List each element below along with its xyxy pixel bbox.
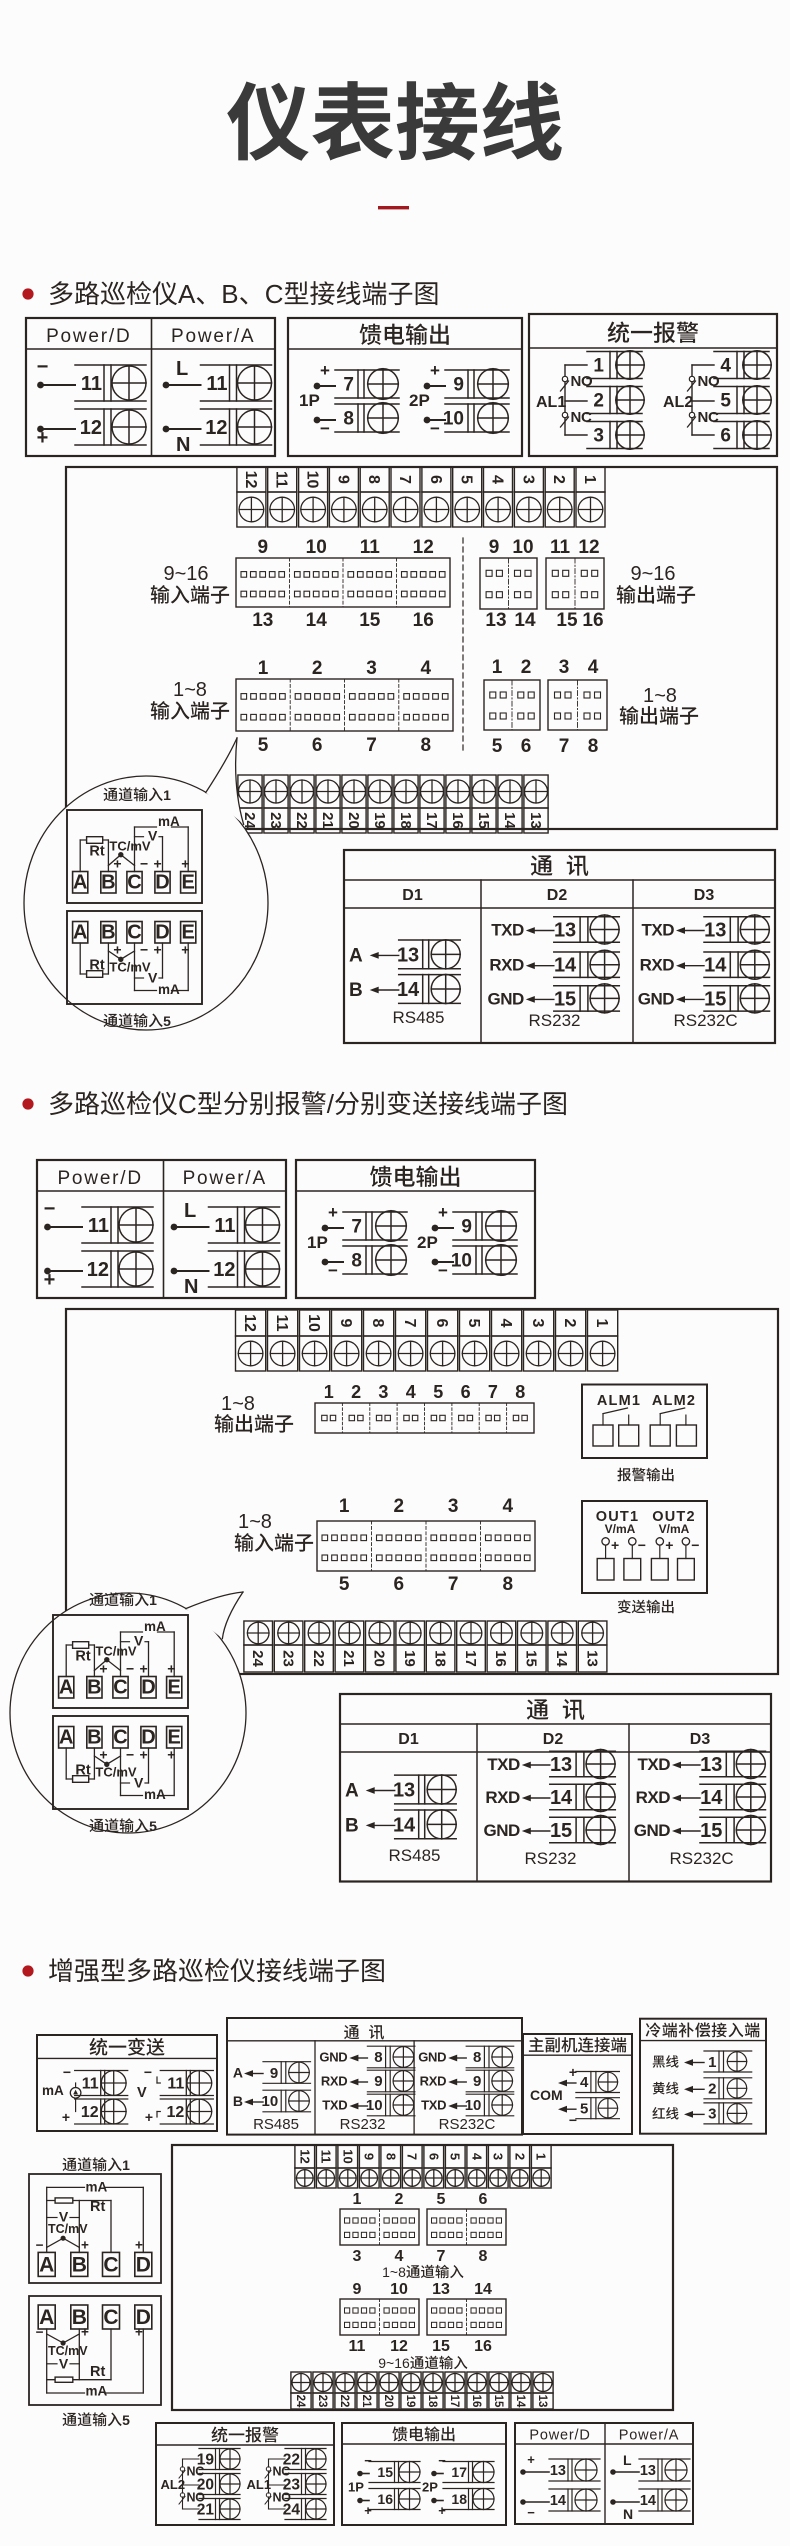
svg-text:B: B [349, 980, 363, 1001]
svg-text:22: 22 [293, 812, 310, 829]
svg-text:A: A [59, 1677, 73, 1699]
svg-text:10: 10 [306, 537, 327, 558]
svg-text:C: C [113, 1727, 127, 1749]
svg-text:−: − [438, 1261, 448, 1280]
svg-text:ALM1: ALM1 [597, 1393, 641, 1409]
svg-text:C: C [103, 2253, 118, 2276]
svg-text:10: 10 [390, 2281, 408, 2298]
svg-text:TXD: TXD [322, 2098, 347, 2113]
svg-text:+: + [181, 942, 189, 958]
svg-text:4: 4 [580, 2074, 589, 2091]
svg-text:9: 9 [334, 475, 351, 484]
svg-text:−: − [140, 856, 148, 872]
svg-text:8: 8 [588, 736, 599, 757]
svg-text:15: 15 [377, 2464, 393, 2480]
svg-text:7: 7 [559, 736, 570, 757]
svg-text:1: 1 [186, 563, 197, 585]
svg-text:9: 9 [362, 2153, 377, 2160]
svg-text:22: 22 [338, 2395, 350, 2408]
svg-text:1: 1 [653, 563, 664, 585]
svg-text:12: 12 [81, 2104, 99, 2121]
svg-text:8: 8 [374, 2049, 382, 2066]
svg-text:~: ~ [249, 1511, 261, 1533]
svg-text:7: 7 [488, 1382, 498, 1402]
svg-text:2: 2 [512, 2153, 527, 2160]
svg-text:1: 1 [708, 2054, 716, 2071]
svg-text:D: D [141, 1727, 155, 1749]
svg-text:NO: NO [571, 373, 594, 390]
svg-text:−: − [691, 1537, 699, 1553]
svg-text:11: 11 [82, 2076, 99, 2093]
svg-text:18: 18 [431, 1650, 448, 1667]
svg-text:TC/mV: TC/mV [109, 960, 150, 975]
svg-text:+: + [154, 856, 162, 872]
svg-text:6: 6 [479, 2191, 488, 2208]
svg-text:RS232: RS232 [340, 2116, 386, 2133]
svg-text:+: + [438, 1203, 448, 1222]
svg-text:12: 12 [241, 1314, 258, 1332]
svg-text:6: 6 [426, 2153, 441, 2160]
svg-text:9: 9 [164, 563, 175, 585]
svg-text:13: 13 [252, 610, 273, 631]
svg-text:12: 12 [87, 1259, 109, 1281]
svg-text:14: 14 [306, 610, 328, 631]
svg-text:D: D [141, 1677, 155, 1699]
svg-text:C: C [113, 1677, 127, 1699]
svg-text:8: 8 [398, 2264, 406, 2280]
svg-text:6: 6 [720, 426, 731, 447]
svg-text:6: 6 [197, 563, 208, 585]
svg-text:11: 11 [88, 1215, 109, 1237]
svg-text:5: 5 [437, 2191, 446, 2208]
svg-text:2: 2 [395, 2191, 404, 2208]
svg-text:NC: NC [698, 409, 720, 426]
svg-text:+: + [140, 1747, 148, 1763]
svg-text:~: ~ [184, 679, 196, 701]
svg-text:16: 16 [470, 2395, 482, 2408]
svg-text:Rt: Rt [75, 1763, 90, 1779]
svg-text:1: 1 [353, 2191, 362, 2208]
svg-text:5: 5 [720, 391, 731, 412]
svg-text:mA: mA [42, 2083, 64, 2098]
svg-text:AL1: AL1 [536, 394, 566, 411]
svg-text:1: 1 [534, 2153, 549, 2160]
svg-text:8: 8 [369, 1319, 386, 1328]
svg-text:+: + [81, 2325, 89, 2340]
svg-text:2: 2 [561, 1319, 578, 1328]
svg-text:−: − [569, 2112, 577, 2128]
svg-text:15: 15 [556, 610, 578, 631]
svg-text:8: 8 [666, 685, 677, 707]
svg-text:RS485: RS485 [389, 1846, 441, 1865]
svg-text:GND: GND [484, 1821, 521, 1840]
svg-text:4: 4 [406, 1382, 416, 1402]
svg-text:~: ~ [386, 2355, 394, 2371]
svg-text:~: ~ [654, 685, 666, 707]
svg-text:7: 7 [366, 735, 377, 756]
svg-text:13: 13 [640, 2463, 656, 2479]
svg-text:B: B [101, 872, 115, 894]
svg-text:22: 22 [310, 1650, 327, 1667]
svg-text:TC/mV: TC/mV [95, 1644, 136, 1659]
svg-text:20: 20 [345, 812, 362, 829]
svg-text:+: + [328, 1203, 338, 1222]
svg-text:Power/A: Power/A [619, 2428, 679, 2444]
svg-text:A: A [345, 1781, 359, 1802]
svg-text:6: 6 [433, 1319, 450, 1328]
svg-text:8: 8 [244, 1393, 255, 1415]
svg-text:Rt: Rt [75, 1648, 90, 1664]
svg-text:5: 5 [458, 475, 475, 484]
svg-text:+: + [113, 942, 121, 958]
svg-text:2: 2 [708, 2081, 716, 2098]
svg-text:+: + [62, 2109, 70, 2125]
svg-text:1P: 1P [348, 2480, 364, 2495]
svg-text:Rt: Rt [90, 2199, 105, 2215]
svg-text:D3: D3 [694, 887, 715, 904]
svg-text:TC/mV: TC/mV [48, 2344, 88, 2358]
svg-text:4: 4 [421, 658, 432, 679]
svg-text:8: 8 [196, 679, 207, 701]
svg-text:7: 7 [437, 2248, 446, 2265]
svg-text:17: 17 [462, 1650, 479, 1667]
svg-text:N: N [623, 2506, 633, 2522]
svg-text:3: 3 [448, 1496, 459, 1517]
svg-text:2: 2 [351, 1382, 361, 1402]
svg-text:12: 12 [205, 417, 227, 439]
svg-text:12: 12 [297, 2149, 312, 2163]
svg-text:7: 7 [343, 375, 354, 396]
svg-text:15: 15 [554, 988, 576, 1010]
svg-text:A: A [349, 945, 363, 966]
svg-text:1: 1 [394, 2355, 402, 2371]
svg-text:14: 14 [514, 610, 536, 631]
svg-text:mA: mA [86, 2384, 108, 2399]
svg-text:14: 14 [550, 1787, 573, 1809]
svg-text:24: 24 [249, 1650, 266, 1667]
svg-text:+: + [135, 2325, 143, 2340]
svg-text:18: 18 [397, 812, 414, 829]
svg-text:V: V [137, 2085, 147, 2101]
svg-text:COM: COM [530, 2087, 563, 2103]
svg-text:18: 18 [451, 2491, 467, 2507]
svg-text:+: + [154, 942, 162, 958]
svg-text:13: 13 [704, 920, 726, 942]
svg-text:~: ~ [390, 2264, 398, 2280]
svg-text:L: L [176, 358, 188, 380]
svg-text:13: 13 [527, 812, 544, 829]
svg-text:+: + [181, 856, 189, 872]
svg-text:L: L [623, 2452, 632, 2468]
svg-text:V: V [148, 827, 158, 843]
svg-text:12: 12 [242, 471, 259, 489]
svg-text:−: − [126, 1661, 134, 1677]
svg-text:+: + [438, 2503, 446, 2518]
svg-text:11: 11 [349, 2338, 366, 2355]
svg-text:−: − [37, 356, 49, 378]
svg-text:4: 4 [720, 356, 731, 377]
svg-text:TXD: TXD [642, 921, 675, 940]
svg-text:1: 1 [339, 1496, 350, 1517]
svg-text:11: 11 [273, 471, 290, 488]
svg-text:3: 3 [519, 475, 536, 484]
svg-text:RXD: RXD [640, 956, 675, 975]
svg-text:D1: D1 [402, 887, 423, 904]
svg-text:+: + [665, 1537, 673, 1553]
svg-text:1: 1 [163, 787, 171, 803]
svg-text:5: 5 [492, 736, 503, 757]
svg-text:~: ~ [232, 1393, 244, 1415]
svg-text:+: + [569, 2064, 577, 2080]
svg-text:19: 19 [371, 812, 388, 829]
svg-text:8: 8 [383, 2153, 398, 2160]
svg-text:23: 23 [316, 2395, 328, 2408]
svg-text:4: 4 [395, 2248, 404, 2265]
svg-text:14: 14 [501, 812, 518, 829]
svg-text:14: 14 [393, 1814, 416, 1836]
svg-text:1: 1 [643, 685, 654, 707]
svg-text:8: 8 [473, 2049, 481, 2066]
svg-text:2: 2 [593, 391, 604, 412]
svg-text:8: 8 [343, 409, 354, 430]
svg-text:4: 4 [489, 475, 506, 484]
svg-text:mA: mA [86, 2179, 108, 2194]
svg-text:8: 8 [479, 2248, 488, 2265]
svg-text:10: 10 [451, 1251, 472, 1272]
svg-text:Rt: Rt [90, 2364, 105, 2380]
svg-text:AL2: AL2 [663, 394, 693, 411]
svg-text:+: + [37, 427, 49, 449]
svg-text:NC: NC [571, 409, 593, 426]
svg-text:RXD: RXD [489, 956, 524, 975]
svg-text:20: 20 [371, 1650, 388, 1667]
svg-text:+: + [167, 1747, 175, 1763]
svg-text:A: A [73, 922, 87, 944]
svg-text:6: 6 [427, 475, 444, 484]
svg-text:5: 5 [433, 1382, 443, 1402]
svg-text:L: L [184, 1200, 196, 1222]
svg-text:V/mA: V/mA [605, 1522, 636, 1536]
svg-text:12: 12 [413, 537, 434, 558]
svg-text:−: − [36, 2238, 44, 2253]
svg-text:11: 11 [273, 1315, 290, 1332]
svg-text:5: 5 [258, 735, 269, 756]
svg-text:14: 14 [474, 2281, 492, 2298]
svg-text:14: 14 [700, 1787, 723, 1809]
svg-text:16: 16 [582, 610, 603, 631]
svg-text:RXD: RXD [636, 1788, 671, 1807]
svg-text:+: + [527, 2452, 535, 2467]
svg-text:10: 10 [465, 2097, 482, 2114]
svg-text:1: 1 [492, 657, 503, 678]
svg-text:3: 3 [491, 2153, 506, 2160]
svg-text:10: 10 [340, 2149, 355, 2163]
svg-text:1: 1 [258, 658, 269, 679]
svg-text:16: 16 [377, 2491, 393, 2507]
svg-text:4: 4 [503, 1496, 514, 1517]
svg-text:TXD: TXD [491, 921, 524, 940]
svg-text:GND: GND [638, 989, 675, 1008]
svg-text:9: 9 [631, 563, 642, 585]
svg-text:23: 23 [267, 812, 284, 829]
svg-text:mA: mA [144, 1787, 166, 1802]
svg-text:V: V [134, 1632, 144, 1648]
svg-text:1: 1 [593, 1319, 610, 1328]
svg-text:5: 5 [465, 1319, 482, 1328]
svg-text:13: 13 [432, 2281, 450, 2298]
svg-text:−: − [144, 2064, 152, 2080]
svg-text:Power/D: Power/D [57, 1168, 142, 1189]
svg-text:9: 9 [374, 2073, 382, 2090]
svg-text:C: C [127, 922, 141, 944]
svg-text:1: 1 [382, 2264, 390, 2280]
svg-text:10: 10 [512, 537, 533, 558]
svg-text:NC: NC [187, 2465, 205, 2479]
svg-text:C: C [127, 872, 141, 894]
svg-text:−: − [438, 2453, 446, 2468]
svg-text:V: V [148, 970, 158, 986]
svg-text:8: 8 [421, 735, 432, 756]
svg-text:9: 9 [353, 2281, 362, 2298]
svg-text:+: + [135, 2238, 143, 2253]
svg-text:RXD: RXD [485, 1788, 520, 1807]
svg-text:8: 8 [261, 1511, 272, 1533]
svg-text:16: 16 [492, 1650, 509, 1667]
svg-text:11: 11 [319, 2150, 334, 2164]
svg-text:RXD: RXD [420, 2074, 447, 2089]
svg-text:B: B [345, 1815, 359, 1836]
svg-text:1: 1 [173, 679, 184, 701]
svg-text:D2: D2 [543, 1731, 564, 1748]
svg-text:10: 10 [443, 409, 464, 430]
svg-text:B: B [221, 279, 238, 309]
svg-text:TXD: TXD [487, 1755, 520, 1774]
svg-text:A: A [59, 1727, 73, 1749]
svg-text:17: 17 [448, 2395, 460, 2408]
svg-text:11: 11 [550, 537, 571, 558]
svg-text:11: 11 [214, 1215, 235, 1237]
svg-text:21: 21 [340, 1650, 357, 1667]
svg-text:5: 5 [149, 1818, 157, 1834]
svg-text:1: 1 [221, 1393, 232, 1415]
svg-text:GND: GND [319, 2050, 347, 2065]
svg-text:11: 11 [360, 537, 381, 558]
svg-text:+: + [113, 856, 121, 872]
svg-text:D: D [155, 922, 169, 944]
svg-text:10: 10 [262, 2093, 279, 2110]
svg-text:13: 13 [700, 1754, 722, 1776]
svg-text:13: 13 [397, 944, 419, 966]
svg-text:8: 8 [503, 1574, 514, 1595]
svg-text:2P: 2P [409, 391, 430, 410]
svg-text:V/mA: V/mA [659, 1522, 690, 1536]
svg-text:14: 14 [704, 955, 727, 977]
svg-text:~: ~ [642, 563, 654, 585]
svg-text:8: 8 [351, 1251, 362, 1272]
svg-text:V: V [134, 1775, 144, 1791]
svg-text:2: 2 [550, 475, 567, 484]
svg-text:15: 15 [700, 1820, 722, 1842]
svg-text:−: − [364, 2453, 372, 2468]
svg-text:14: 14 [554, 955, 577, 977]
svg-text:−: − [638, 1537, 646, 1553]
svg-text:3: 3 [529, 1319, 546, 1328]
svg-text:8: 8 [515, 1382, 525, 1402]
svg-text:Power/A: Power/A [171, 326, 255, 347]
svg-text:21: 21 [360, 2395, 372, 2408]
svg-text:12: 12 [390, 2338, 408, 2355]
svg-text:Power/A: Power/A [183, 1168, 267, 1189]
svg-text:GND: GND [418, 2050, 446, 2065]
svg-text:NC: NC [273, 2465, 291, 2479]
svg-text:9: 9 [270, 2065, 278, 2082]
svg-text:TC/mV: TC/mV [95, 1765, 136, 1780]
svg-text:RS232: RS232 [529, 1011, 581, 1030]
svg-text:9: 9 [461, 1217, 472, 1238]
svg-text:NO: NO [698, 373, 721, 390]
svg-text:11: 11 [206, 373, 227, 395]
svg-text:6: 6 [664, 563, 675, 585]
svg-text:12: 12 [578, 537, 599, 558]
svg-text:A: A [39, 2253, 54, 2276]
svg-text:mA: mA [144, 1619, 166, 1634]
svg-text:/: / [327, 1089, 335, 1119]
svg-text:−: − [44, 1198, 56, 1220]
svg-text:9: 9 [258, 537, 269, 558]
svg-text:3: 3 [593, 426, 604, 447]
svg-text:−: − [140, 942, 148, 958]
svg-text:13: 13 [393, 1780, 415, 1802]
svg-text:2: 2 [521, 657, 532, 678]
svg-text:11: 11 [167, 2076, 184, 2093]
svg-text:+: + [145, 2109, 153, 2125]
svg-text:D: D [136, 2253, 151, 2276]
svg-text:8: 8 [365, 475, 382, 484]
svg-text:6: 6 [394, 1574, 405, 1595]
svg-text:13: 13 [550, 1754, 572, 1776]
svg-text:2: 2 [394, 1496, 405, 1517]
svg-text:4: 4 [588, 657, 599, 678]
svg-text:AL1: AL1 [247, 2477, 272, 2492]
svg-text:E: E [168, 1727, 181, 1749]
svg-text:12: 12 [167, 2104, 185, 2121]
svg-text:ALM2: ALM2 [652, 1393, 696, 1409]
svg-text:RS232: RS232 [525, 1849, 577, 1868]
svg-text:E: E [168, 1677, 181, 1699]
svg-text:10: 10 [366, 2097, 383, 2114]
svg-text:9: 9 [473, 2073, 481, 2090]
svg-text:1: 1 [149, 1592, 157, 1608]
svg-text:C: C [265, 279, 284, 309]
svg-text:2P: 2P [422, 2480, 438, 2495]
svg-text:16: 16 [449, 812, 466, 829]
svg-text:15: 15 [359, 610, 381, 631]
svg-text:10: 10 [304, 471, 321, 489]
svg-text:21: 21 [319, 812, 336, 829]
svg-text:1P: 1P [299, 391, 320, 410]
svg-text:15: 15 [432, 2338, 450, 2355]
svg-text:6: 6 [461, 1382, 471, 1402]
svg-text:16: 16 [413, 610, 434, 631]
svg-text:3: 3 [366, 658, 377, 679]
svg-text:9: 9 [489, 537, 500, 558]
svg-text:mA: mA [158, 982, 180, 997]
svg-text:+: + [99, 1747, 107, 1763]
svg-text:N: N [184, 1276, 198, 1298]
svg-text:NO: NO [187, 2491, 206, 2505]
svg-text:13: 13 [536, 2395, 548, 2408]
svg-text:13: 13 [485, 610, 506, 631]
